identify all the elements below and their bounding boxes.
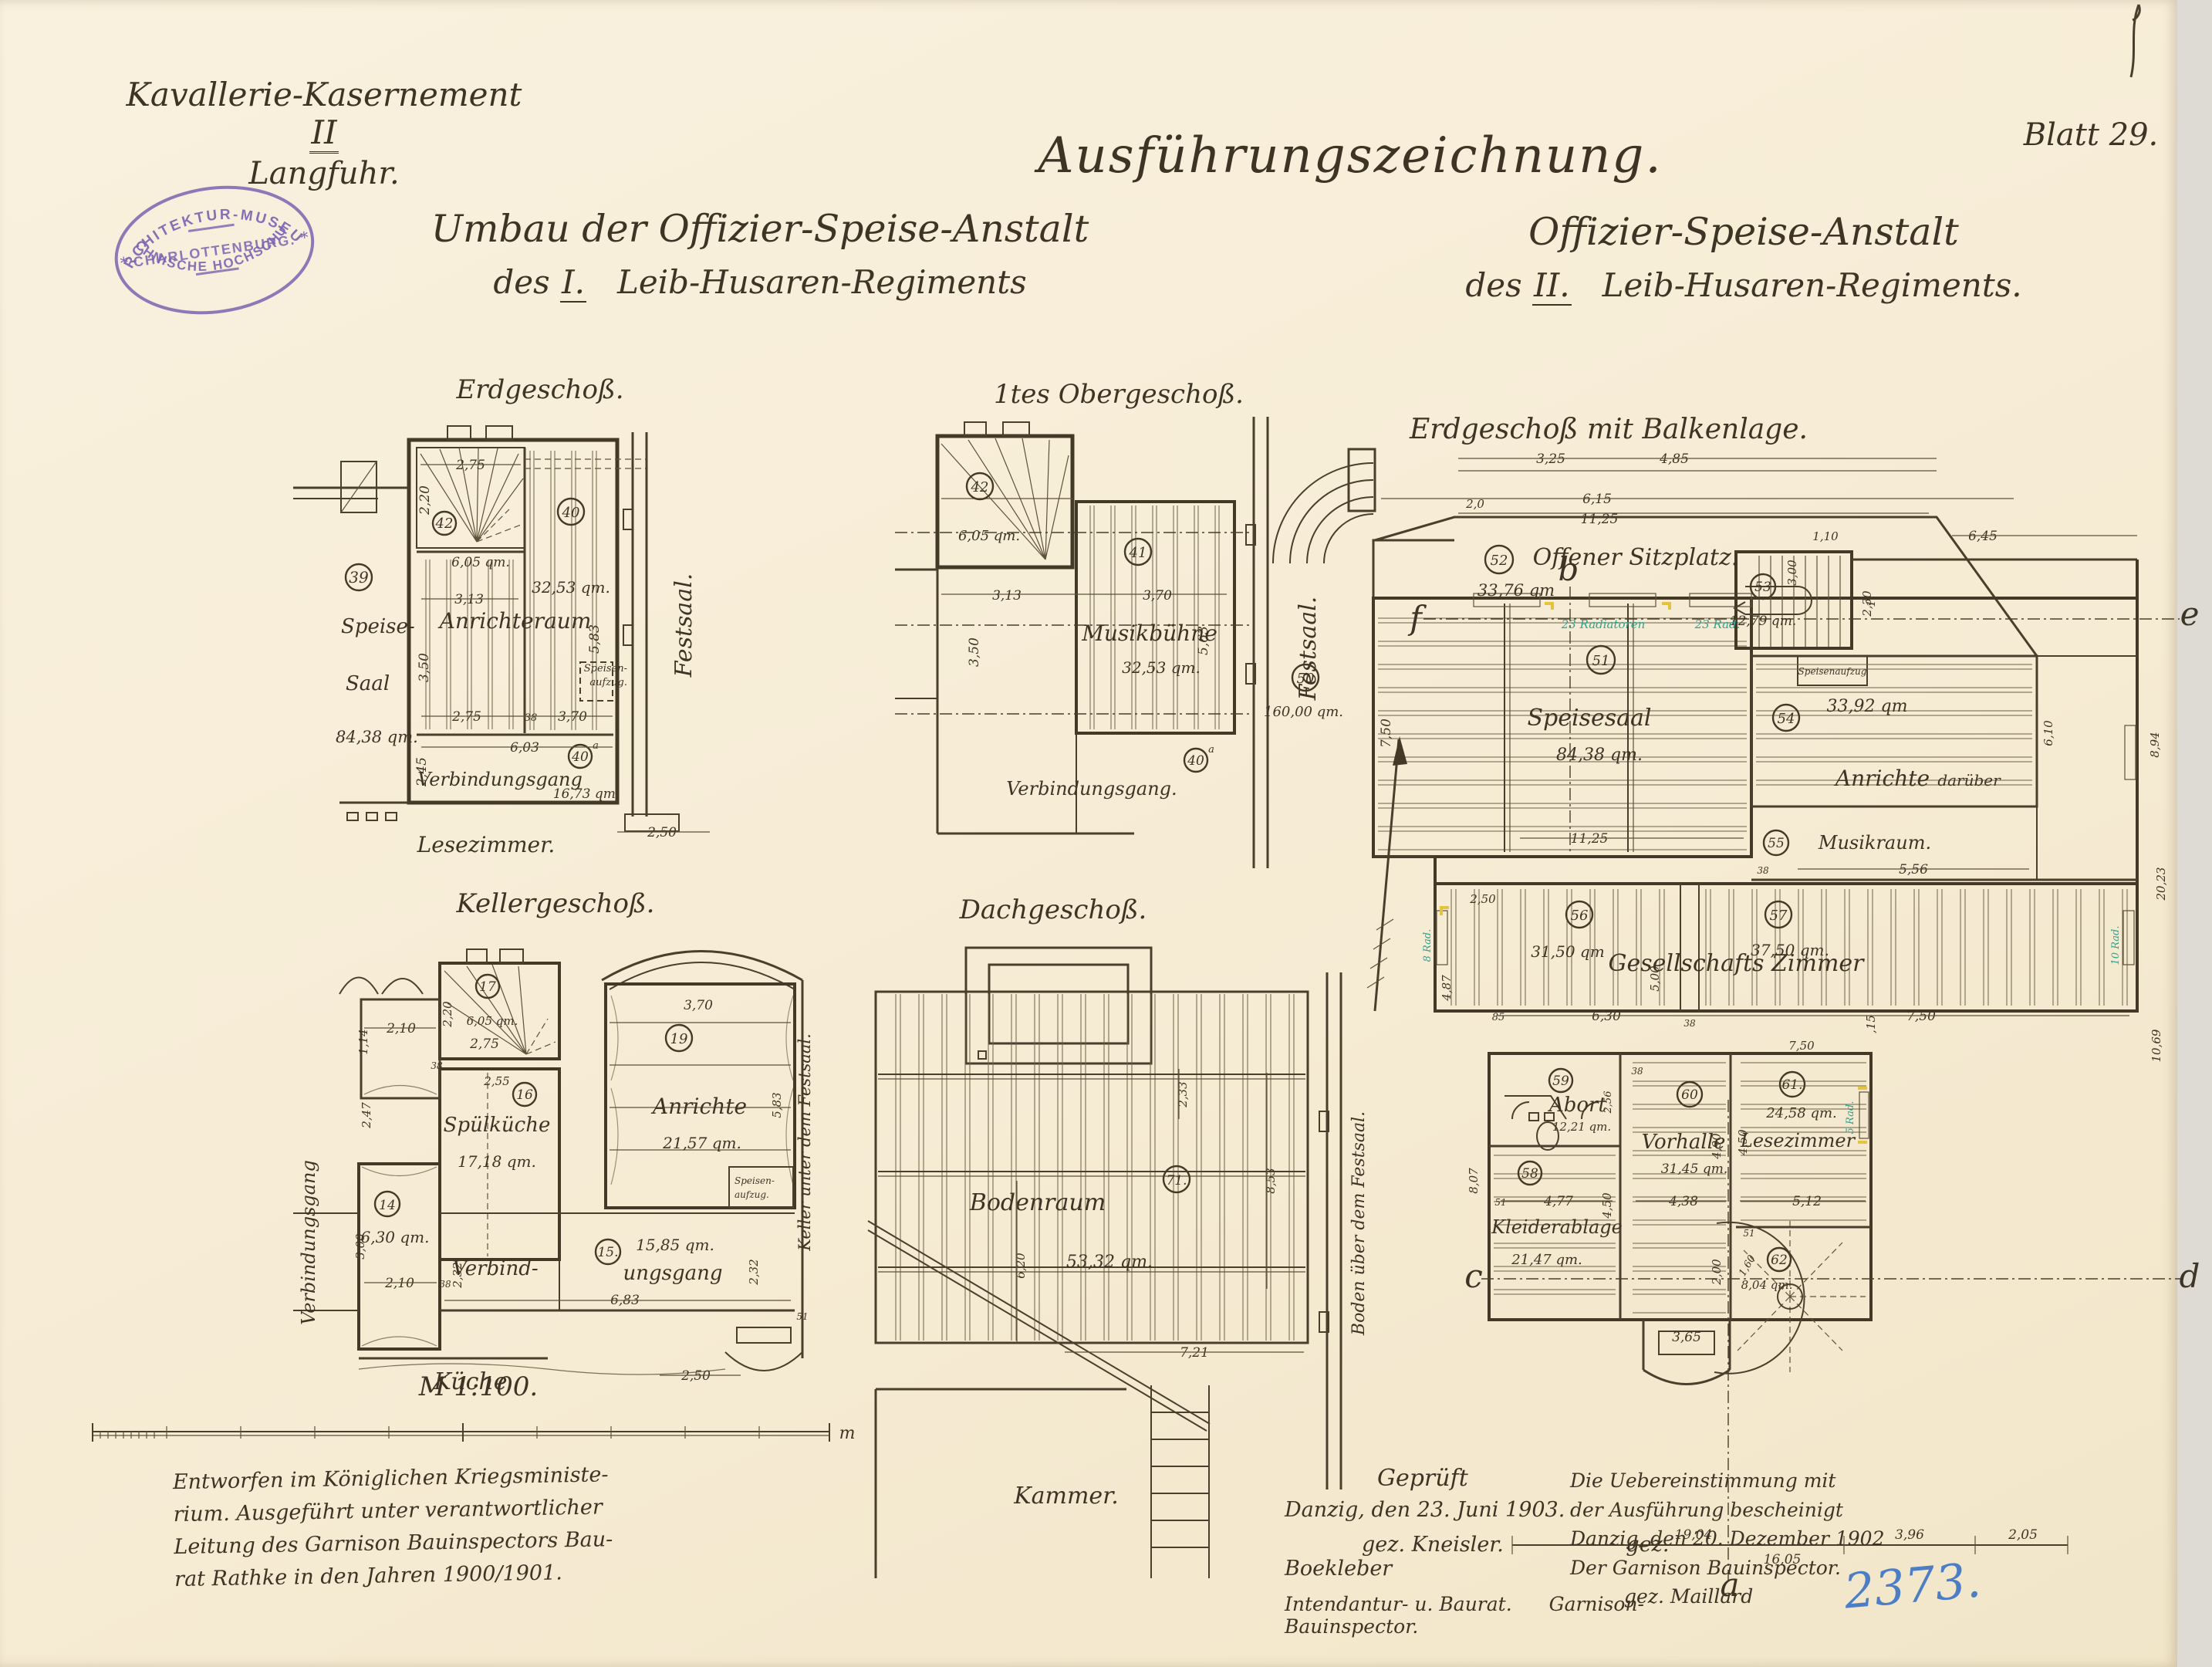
room-number-39: 39 bbox=[349, 568, 369, 587]
room-gesellschaftszimmer-label: Gesellschafts Zimmer bbox=[1609, 950, 1866, 977]
site-line1: Kavallerie-Kasernement II bbox=[116, 76, 532, 151]
dim: 38 bbox=[1631, 1066, 1643, 1077]
speisenaufzug-label2: aufzug. bbox=[735, 1189, 769, 1200]
dim: 51 bbox=[1743, 1228, 1754, 1239]
room-number-40: 40 bbox=[562, 505, 580, 521]
dim: 11,25 bbox=[1581, 512, 1619, 527]
dim: 2,56 bbox=[1602, 1091, 1614, 1114]
room-number-17: 17 bbox=[479, 979, 496, 995]
dim: 3,00 bbox=[353, 1233, 367, 1260]
room-bodenraum-label: Bodenraum bbox=[969, 1189, 1106, 1216]
room-kleiderablage-label: Kleiderablage bbox=[1491, 1216, 1623, 1238]
dim: 2,55 bbox=[483, 1074, 509, 1088]
room-56-area: 31,50 qm bbox=[1531, 942, 1604, 961]
room-musikraum-label: Musikraum. bbox=[1818, 832, 1931, 854]
dim: 4,50 bbox=[1736, 1129, 1750, 1156]
plan-eg-room-39: 39 Speise- Saal 84,38 qm. bbox=[336, 564, 418, 746]
dim: 6,15 bbox=[1582, 492, 1612, 507]
room-anrichte-label: Anrichte bbox=[650, 1094, 747, 1119]
room-number-54: 54 bbox=[1778, 711, 1795, 727]
room-verbindungsgang-label: Verbindungsgang bbox=[417, 769, 583, 790]
right-title-line2: des II. Leib-Husaren-Regiments. bbox=[1450, 266, 2037, 304]
room-verbindungsgang-label: Verbindungsgang. bbox=[1006, 778, 1177, 800]
room-54-area: 33,92 qm bbox=[1827, 697, 1908, 716]
plan-balken-title: Erdgeschoß mit Balkenlage. bbox=[1409, 414, 1808, 445]
dim: 38 bbox=[439, 1279, 451, 1290]
plan-kg-room-14: 14 6,30 qm. bbox=[360, 1192, 429, 1246]
radiator-label-8: 8 Rad. bbox=[1422, 929, 1434, 962]
dim: 3,70 bbox=[558, 709, 587, 725]
room-kammer-label: Kammer. bbox=[1013, 1483, 1119, 1510]
dim: 4,50 bbox=[1600, 1192, 1614, 1219]
plan-balken-room-55: 55 Musikraum. bbox=[1764, 830, 1931, 855]
plan-kg-title: Kellergeschoß. bbox=[456, 888, 655, 919]
radiator-label-10: 10 Rad. bbox=[2110, 926, 2122, 965]
dim: 2,20 bbox=[417, 485, 433, 516]
dim: 2,00 bbox=[1710, 1259, 1724, 1286]
scale-label: M 1:100. bbox=[418, 1371, 538, 1402]
room-number-57: 57 bbox=[1770, 908, 1788, 924]
plan-erdgeschoss: Erdgeschoß. 39 Speise- Saal 84,38 q bbox=[293, 370, 802, 872]
right-title-line1: Offizier-Speise-Anstalt bbox=[1450, 210, 2037, 254]
room-lesezimmer-label: Lesezimmer bbox=[1740, 1130, 1856, 1151]
right-title-block: Offizier-Speise-Anstalt des II. Leib-Hus… bbox=[1450, 210, 2037, 304]
plan-kg-room-19: 19 Anrichte 21,57 qm. bbox=[650, 1025, 747, 1152]
section-letter-e: e bbox=[2180, 595, 2200, 633]
plan-kellergeschoss: Kellergeschoß. 17 6,05 qm. bbox=[293, 880, 818, 1412]
room-number-40a-sup: a bbox=[1208, 744, 1214, 756]
speisenaufzug-label2: aufzug. bbox=[589, 677, 627, 688]
room-number-51: 51 bbox=[1592, 653, 1610, 669]
room-number-14: 14 bbox=[379, 1198, 396, 1213]
right-title-regiment: Leib-Husaren-Regiments. bbox=[1602, 266, 2022, 304]
room-58-area: 21,47 qm. bbox=[1511, 1252, 1582, 1268]
room-spuelkueche-label: Spülküche bbox=[444, 1114, 551, 1137]
dim: 4,38 bbox=[1668, 1194, 1698, 1209]
room-number-16: 16 bbox=[516, 1087, 533, 1103]
site-caption: Kavallerie-Kasernement II Langfuhr. bbox=[116, 76, 532, 191]
speisenaufzug-label1: Speisen- bbox=[735, 1175, 775, 1186]
radiator-label-short: 23 Rad. bbox=[1694, 617, 1741, 631]
certification-line2: der Ausführung bescheinigt bbox=[1570, 1496, 1940, 1525]
main-title: Ausführungszeichnung. bbox=[1026, 127, 1674, 184]
plan-balken-room-50: 50 160,00 qm. bbox=[1264, 664, 1343, 720]
dim: 4,77 bbox=[1543, 1194, 1573, 1209]
site-line1-text: Kavallerie-Kasernement bbox=[127, 76, 522, 113]
room-40-area: 32,53 qm. bbox=[532, 578, 610, 597]
plan-og-title: 1tes Obergeschoß. bbox=[994, 379, 1244, 410]
signature-kneisler: gez. Kneisler. bbox=[1362, 1533, 1504, 1557]
dim: 3,65 bbox=[1672, 1330, 1701, 1345]
dim: 2,50 bbox=[1469, 892, 1496, 906]
left-title-line1: Umbau der Offizier-Speise-Anstalt bbox=[417, 207, 1103, 251]
dim: 6,20 bbox=[1014, 1253, 1028, 1279]
plan-balken-room-52: 52 Offener Sitzplatz. 33,76 qm bbox=[1477, 544, 1738, 600]
left-title-block: Umbau der Offizier-Speise-Anstalt des I.… bbox=[417, 207, 1103, 301]
room-51-area: 84,38 qm. bbox=[1556, 746, 1643, 765]
section-letter-d: d bbox=[2180, 1257, 2200, 1295]
plan-kg-room-15: 15. Verbind- ungsgang 15,85 qm. bbox=[452, 1236, 722, 1285]
verbindungsgang-vertical-label: Verbindungsgang bbox=[298, 1160, 319, 1325]
dim: 5,83 bbox=[770, 1092, 784, 1118]
dim: 11,25 bbox=[1571, 831, 1609, 847]
room-17-area: 6,05 qm. bbox=[467, 1014, 518, 1028]
dim: 3,50 bbox=[967, 637, 982, 667]
dim: 8,07 bbox=[1467, 1168, 1481, 1194]
room-number-55: 55 bbox=[1768, 836, 1785, 851]
dim: 3,50 bbox=[417, 653, 432, 682]
room-number-62: 62 bbox=[1771, 1253, 1788, 1268]
plan-balken-room-59: 59 Abort 12,21 qm. bbox=[1548, 1069, 1611, 1134]
dim: 51 bbox=[796, 1311, 808, 1322]
dim: 2,20 bbox=[441, 1001, 454, 1028]
dim: 38 bbox=[1683, 1018, 1696, 1029]
dim: 1,60 bbox=[1737, 1253, 1758, 1279]
dim: 8,94 bbox=[2148, 732, 2162, 757]
room-61-area: 24,58 qm. bbox=[1765, 1105, 1837, 1121]
room-16-area: 17,18 qm. bbox=[458, 1152, 536, 1171]
room-62-area: 8,04 qm. bbox=[1741, 1278, 1793, 1292]
dim: 6,10 bbox=[2041, 720, 2055, 746]
speisenaufzug-label1: Speisen- bbox=[584, 663, 627, 675]
dim: 10,69 bbox=[2150, 1029, 2163, 1062]
dim: 3,13 bbox=[454, 592, 484, 607]
dim: 2,75 bbox=[455, 458, 485, 473]
section-letter-c: c bbox=[1464, 1257, 1483, 1295]
stamp-star-right: * bbox=[299, 228, 309, 247]
dim: 7,50 bbox=[1379, 719, 1394, 748]
dim: 4,90 bbox=[1710, 1133, 1724, 1160]
dim: 51 bbox=[1494, 1197, 1506, 1208]
corner-pen-mark bbox=[2099, 0, 2183, 85]
museum-stamp: ARCHITEKTUR-MUSEUM CHARLOTTENBURG. TECHN… bbox=[97, 164, 331, 336]
dim: 2,75 bbox=[451, 709, 481, 725]
plan-dg-title: Dachgeschoß. bbox=[959, 894, 1147, 925]
dim: 7,50 bbox=[1788, 1039, 1815, 1053]
dim: 3,70 bbox=[1143, 588, 1172, 604]
dim: 38 bbox=[1757, 865, 1769, 876]
dim: 2,30 bbox=[1860, 590, 1874, 617]
room-speisesaal-label1: Speise- bbox=[341, 615, 415, 638]
room-14-area: 6,30 qm. bbox=[360, 1228, 429, 1246]
dim: 4,87 bbox=[1440, 975, 1454, 1002]
room-number-40a-sup: a bbox=[593, 740, 599, 752]
room-42-area: 6,05 qm. bbox=[958, 528, 1020, 544]
radiator-label-long: 23 Radiatoren bbox=[1561, 617, 1646, 631]
room-number-42: 42 bbox=[435, 516, 454, 532]
plan-eg-title: Erdgeschoß. bbox=[455, 374, 623, 405]
dim: 7,21 bbox=[1180, 1345, 1209, 1361]
dim: 2,33 bbox=[1176, 1081, 1190, 1107]
room-speisesaal-label: Speisesaal bbox=[1527, 705, 1651, 732]
room-number-58: 58 bbox=[1521, 1166, 1538, 1182]
plan-og-room-42: 42 6,05 qm. bbox=[958, 473, 1020, 544]
dim: 38 bbox=[431, 1060, 443, 1071]
left-title-line2: des I. Leib-Husaren-Regiments bbox=[417, 263, 1103, 301]
dim: 5,83 bbox=[587, 624, 603, 654]
dim: 85 bbox=[1492, 1012, 1505, 1023]
dim: 20,23 bbox=[2154, 867, 2168, 901]
room-abort-label: Abort bbox=[1548, 1094, 1607, 1117]
room-speisesaal-area: 84,38 qm. bbox=[336, 728, 418, 746]
room-number-50: 50 bbox=[1297, 671, 1315, 687]
dim: 3,13 bbox=[992, 588, 1022, 604]
room-number-53: 53 bbox=[1754, 580, 1771, 595]
room-festsaal-label: Festsaal. bbox=[670, 573, 697, 678]
catalog-number: 2373. bbox=[1842, 1551, 1983, 1619]
plan-balkenlage: Erdgeschoß mit Balkenlage. bbox=[1258, 401, 2207, 1605]
right-title-des: des bbox=[1465, 266, 1521, 304]
dim: 5,56 bbox=[1899, 862, 1928, 877]
room-number-56: 56 bbox=[1571, 908, 1589, 924]
room-59-area: 12,21 qm. bbox=[1552, 1120, 1611, 1134]
right-title-numeral: II. bbox=[1532, 266, 1572, 306]
room-19-area: 21,57 qm. bbox=[662, 1134, 741, 1152]
room-number-40a: 40 bbox=[1187, 753, 1204, 769]
plan-kg-room-16: 16 Spülküche 17,18 qm. bbox=[444, 1083, 551, 1171]
plan-og-room-40a: 40 a bbox=[1184, 744, 1214, 772]
scale-bar-group: M 1:100. m bbox=[69, 1358, 864, 1459]
role-intendantur: Intendantur- u. Baurat. bbox=[1285, 1593, 1512, 1615]
room-number-41: 41 bbox=[1129, 545, 1147, 561]
sheet-number: Blatt 29. bbox=[1991, 117, 2191, 153]
keller-festsaal-vertical-label: Keller unter dem Festsaal. bbox=[795, 1033, 814, 1252]
certification-line1: Die Uebereinstimmung mit bbox=[1570, 1466, 1940, 1496]
room-number-15: 15. bbox=[597, 1245, 618, 1260]
room-speisesaal-label2: Saal bbox=[346, 672, 390, 695]
room-anrichte-darueber-label2: darüber bbox=[1937, 771, 2001, 790]
room-42-area: 6,05 qm. bbox=[451, 555, 510, 570]
dim: 6,03 bbox=[510, 740, 539, 756]
dim: 6,45 bbox=[1968, 529, 1998, 544]
scale-unit: m bbox=[839, 1424, 856, 1443]
dim: 2,05 bbox=[2008, 1527, 2038, 1543]
room-number-61: 61. bbox=[1781, 1077, 1802, 1093]
dim: 3,70 bbox=[684, 998, 713, 1013]
room-15-area: 15,85 qm. bbox=[636, 1236, 714, 1254]
site-line1-numeral: II bbox=[309, 113, 338, 154]
dim: 2,32 bbox=[451, 1262, 464, 1288]
dim: 1,14 bbox=[356, 1029, 370, 1054]
dim: 3,25 bbox=[1536, 451, 1565, 467]
radiator-label-5: 5 Rad. bbox=[1845, 1101, 1856, 1134]
dim: 5,00 bbox=[1648, 965, 1662, 992]
section-letter-b: b bbox=[1559, 550, 1579, 588]
plan-kg-linework bbox=[293, 949, 802, 1375]
left-title-regiment: Leib-Husaren-Regiments bbox=[617, 263, 1027, 301]
room-number-19: 19 bbox=[670, 1031, 688, 1047]
dim: 2,45 bbox=[414, 757, 430, 787]
room-verbind-label1: Verbind- bbox=[452, 1257, 538, 1280]
scale-bar bbox=[93, 1423, 829, 1442]
design-note: Entworfen im Königlichen Kriegsministe- … bbox=[173, 1459, 630, 1596]
dim: 2,10 bbox=[384, 1276, 414, 1291]
room-lesezimmer-label: Lesezimmer. bbox=[417, 832, 556, 857]
room-anrichteraum-label: Anrichteraum bbox=[437, 608, 592, 634]
dim: 6,30 bbox=[1592, 1009, 1621, 1024]
room-50-area: 160,00 qm. bbox=[1264, 704, 1343, 720]
dim: 4,85 bbox=[1659, 451, 1689, 467]
room-52-area: 33,76 qm bbox=[1477, 581, 1555, 600]
dim: 3,00 bbox=[1785, 560, 1799, 586]
dim: 5,63 bbox=[1196, 626, 1211, 655]
room-number-60: 60 bbox=[1681, 1087, 1698, 1103]
dim: 1,10 bbox=[1812, 529, 1839, 543]
dim: 38 bbox=[525, 712, 538, 724]
dim: 2,32 bbox=[747, 1259, 761, 1285]
left-title-des: des bbox=[493, 263, 549, 301]
room-60-area: 31,45 qm. bbox=[1661, 1161, 1727, 1177]
room-number-42: 42 bbox=[971, 479, 989, 495]
room-anrichte-darueber-label1: Anrichte bbox=[1833, 766, 1930, 791]
room-verbind-label2: ungsgang bbox=[623, 1262, 722, 1285]
speisenaufzug-label: Speisenaufzug bbox=[1798, 666, 1867, 677]
room-bodenraum-area: 53,32 qm. bbox=[1066, 1253, 1153, 1272]
dim: 7,50 bbox=[1906, 1009, 1936, 1024]
dim: 2,10 bbox=[386, 1021, 416, 1036]
room-number-71: 71. bbox=[1166, 1173, 1187, 1189]
left-title-numeral: I. bbox=[560, 263, 586, 303]
room-number-40a: 40 bbox=[571, 749, 589, 765]
room-41-area: 32,53 qm. bbox=[1122, 658, 1201, 677]
certification-line3: Danzig, den 20. Dezember 1902 bbox=[1570, 1524, 1940, 1554]
dim: 2,75 bbox=[469, 1036, 499, 1052]
dim: 2,0 bbox=[1465, 497, 1484, 511]
dim: 2,50 bbox=[647, 825, 677, 840]
dim: 5,12 bbox=[1792, 1194, 1822, 1209]
room-number-59: 59 bbox=[1552, 1074, 1569, 1089]
room-number-52: 52 bbox=[1491, 553, 1508, 569]
dim: 2,47 bbox=[360, 1102, 373, 1129]
